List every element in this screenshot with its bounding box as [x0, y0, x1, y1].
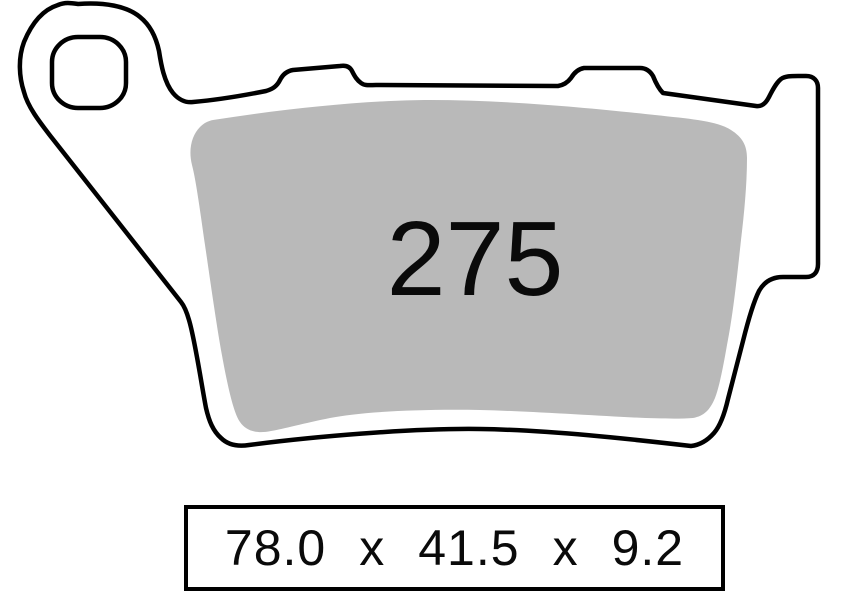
mounting-hole [52, 37, 126, 108]
dimension-separator: x [359, 519, 385, 577]
brake-pad-drawing-page: 275 78.0 x 41.5 x 9.2 [0, 0, 842, 595]
pad-number-label: 275 [387, 200, 564, 318]
dimension-separator: x [553, 519, 579, 577]
dimension-width-value: 78.0 [225, 519, 326, 577]
dimension-height-value: 41.5 [418, 519, 519, 577]
brake-pad-drawing: 275 [0, 0, 842, 500]
dimensions-box: 78.0 x 41.5 x 9.2 [184, 505, 725, 591]
dimension-thickness-value: 9.2 [612, 519, 685, 577]
